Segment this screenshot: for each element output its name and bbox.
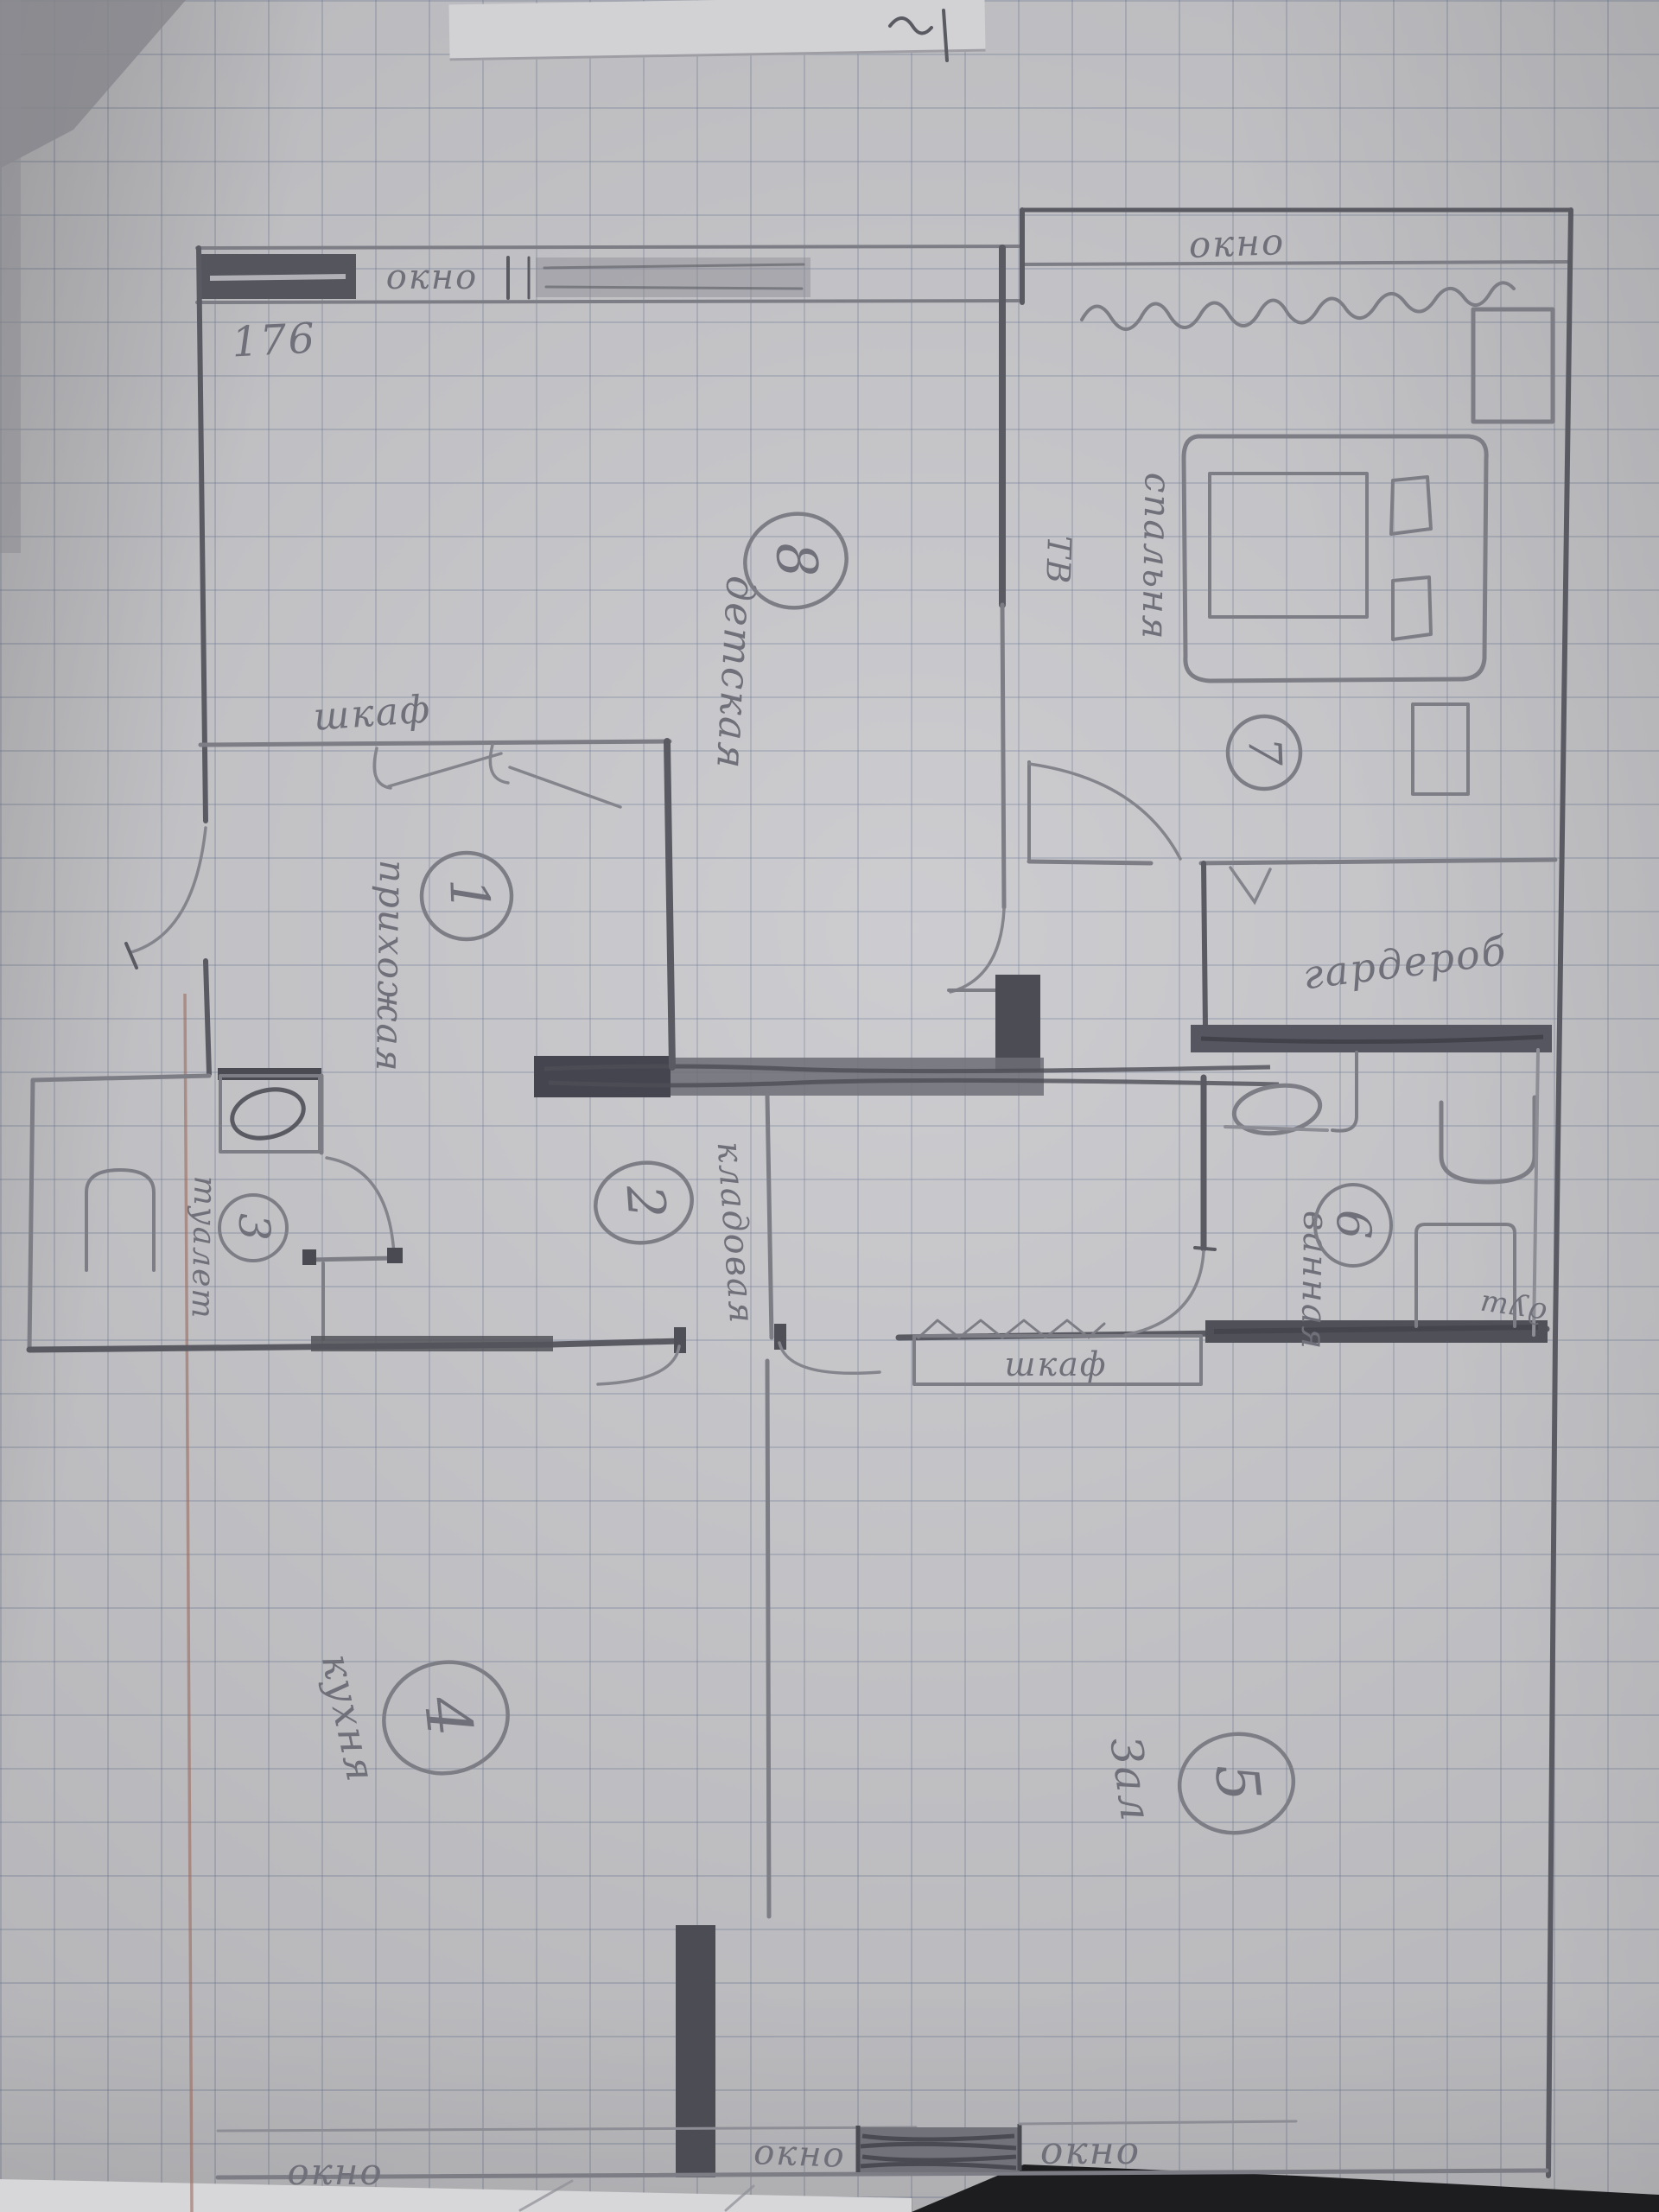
room-number-7: 7 (1228, 716, 1300, 789)
door-jamb-tick (1195, 1248, 1215, 1249)
sink-shelf-line (1225, 1127, 1327, 1130)
svg-text:6: 6 (1326, 1210, 1381, 1241)
closet-label-hall: шкаф (1004, 1345, 1107, 1383)
room-label-hallway: прихожая (368, 860, 414, 1073)
window-label-bottom-right: окно (1040, 2129, 1141, 2173)
wall-bedroom-bottom-right (1201, 860, 1555, 863)
wall-toilet-left (29, 1080, 33, 1350)
wall-top-right-inner (1022, 262, 1571, 264)
toilet-bowl-icon (227, 1083, 309, 1146)
toilet-icon-bathroom (1441, 1097, 1535, 1182)
bathroom-door-leaf (1332, 1052, 1357, 1131)
room-number-1: 1 (422, 853, 512, 939)
photo-corner-shadow (0, 0, 186, 168)
wall-kitchen-hall-lower-dark (676, 1925, 715, 2177)
double-door-arc-right (779, 1343, 880, 1373)
wall-top-left-inner (197, 301, 1022, 302)
entry-nook-door (86, 1170, 154, 1270)
closet-door-leaf (389, 753, 501, 786)
door-jamb-block (302, 1249, 316, 1265)
floor-plan-sketch: 176 окно окно окно окно окно шкаф шкаф г… (0, 0, 1659, 2212)
room-label-toilet: туалет (185, 1175, 223, 1320)
bathroom-inner-line (1534, 1050, 1538, 1335)
wall-left-upper (199, 248, 206, 821)
svg-text:2: 2 (614, 1182, 677, 1222)
bedroom-door-arc (1029, 764, 1180, 859)
wall-hallway-closet (200, 741, 670, 745)
entrance-door-tick (126, 944, 137, 968)
wall-bedroom-bottom (1029, 861, 1151, 863)
svg-text:8: 8 (763, 540, 829, 582)
floor-plan-photo: 176 окно окно окно окно окно шкаф шкаф г… (0, 0, 1659, 2212)
wall-toilet-top (33, 1076, 209, 1080)
room-number-5: 5 (1173, 1726, 1300, 1840)
photo-left-edge (0, 0, 21, 553)
toilet-wall-lower (309, 1258, 396, 1260)
svg-text:4: 4 (410, 1693, 487, 1742)
room-label-hall: Зал (1100, 1734, 1161, 1826)
wall-wardrobe-left (1204, 863, 1205, 1028)
wardrobe-door-mark (1230, 868, 1270, 902)
room-number-4: 4 (373, 1650, 518, 1784)
door-jamb-block (387, 1248, 403, 1263)
wall-shading (536, 257, 810, 297)
pillow (1391, 477, 1431, 534)
window-sill-highlight (210, 276, 346, 278)
room-label-nursery: детская (708, 575, 765, 772)
toilet-door-arc (327, 1158, 394, 1255)
window-label-top-right: окно (1188, 220, 1286, 266)
pillow (1393, 577, 1431, 639)
room-label-pantry: кладовая (709, 1141, 762, 1326)
svg-text:1: 1 (437, 877, 501, 915)
svg-text:3: 3 (229, 1213, 279, 1243)
svg-text:5: 5 (1201, 1760, 1273, 1806)
window-label-bottom-center: окно (753, 2133, 846, 2176)
svg-text:7: 7 (1237, 736, 1290, 768)
radiator-squiggle (1082, 283, 1514, 329)
wall-left-lower (206, 961, 209, 1074)
wall-bottom-inner-line (218, 2127, 916, 2131)
double-door-arc-left (598, 1346, 679, 1384)
closet-door-hooks (374, 745, 508, 788)
wall-bottom-inner-line (1020, 2121, 1296, 2124)
page-bottom-edge (0, 2179, 912, 2212)
wall-top-left-outer (197, 246, 1022, 248)
window-label-bottom-left: окно (287, 2151, 383, 2193)
room-number-6: 6 (1315, 1185, 1391, 1266)
wall-kitchen-hall-upper (767, 1361, 769, 1916)
wardrobe-label: гардероб (1300, 927, 1510, 999)
entrance-door-arc (131, 828, 206, 952)
stray-handwriting-mark (890, 10, 947, 60)
page-number: 176 (231, 315, 317, 367)
window-label-top-left: окно (386, 257, 478, 297)
wall-nursery-bottom-dark (534, 1056, 671, 1097)
nursery-entry-door-leaf (510, 767, 620, 807)
nightstand-bottom (1413, 704, 1468, 794)
nightstand-top (1473, 309, 1553, 422)
wall-shading-dark (311, 1336, 553, 1351)
wall-nursery-bedroom-divider-lower (1002, 605, 1004, 907)
closet-label-hallway: шкаф (312, 687, 433, 739)
room-label-bedroom: спальня (1134, 472, 1179, 641)
wall-pantry-right (767, 1096, 772, 1338)
bed-mattress (1210, 474, 1367, 617)
wall-block-dark (995, 975, 1040, 1071)
room-number-3: 3 (219, 1195, 287, 1261)
bathroom-door-arc (1125, 1251, 1204, 1335)
wall-right (1548, 210, 1571, 2176)
room-label-kitchen: кухня (313, 1649, 385, 1787)
room-number-2: 2 (589, 1155, 698, 1250)
tv-label: ТВ (1039, 535, 1078, 586)
wall-nursery-left (667, 741, 672, 1067)
